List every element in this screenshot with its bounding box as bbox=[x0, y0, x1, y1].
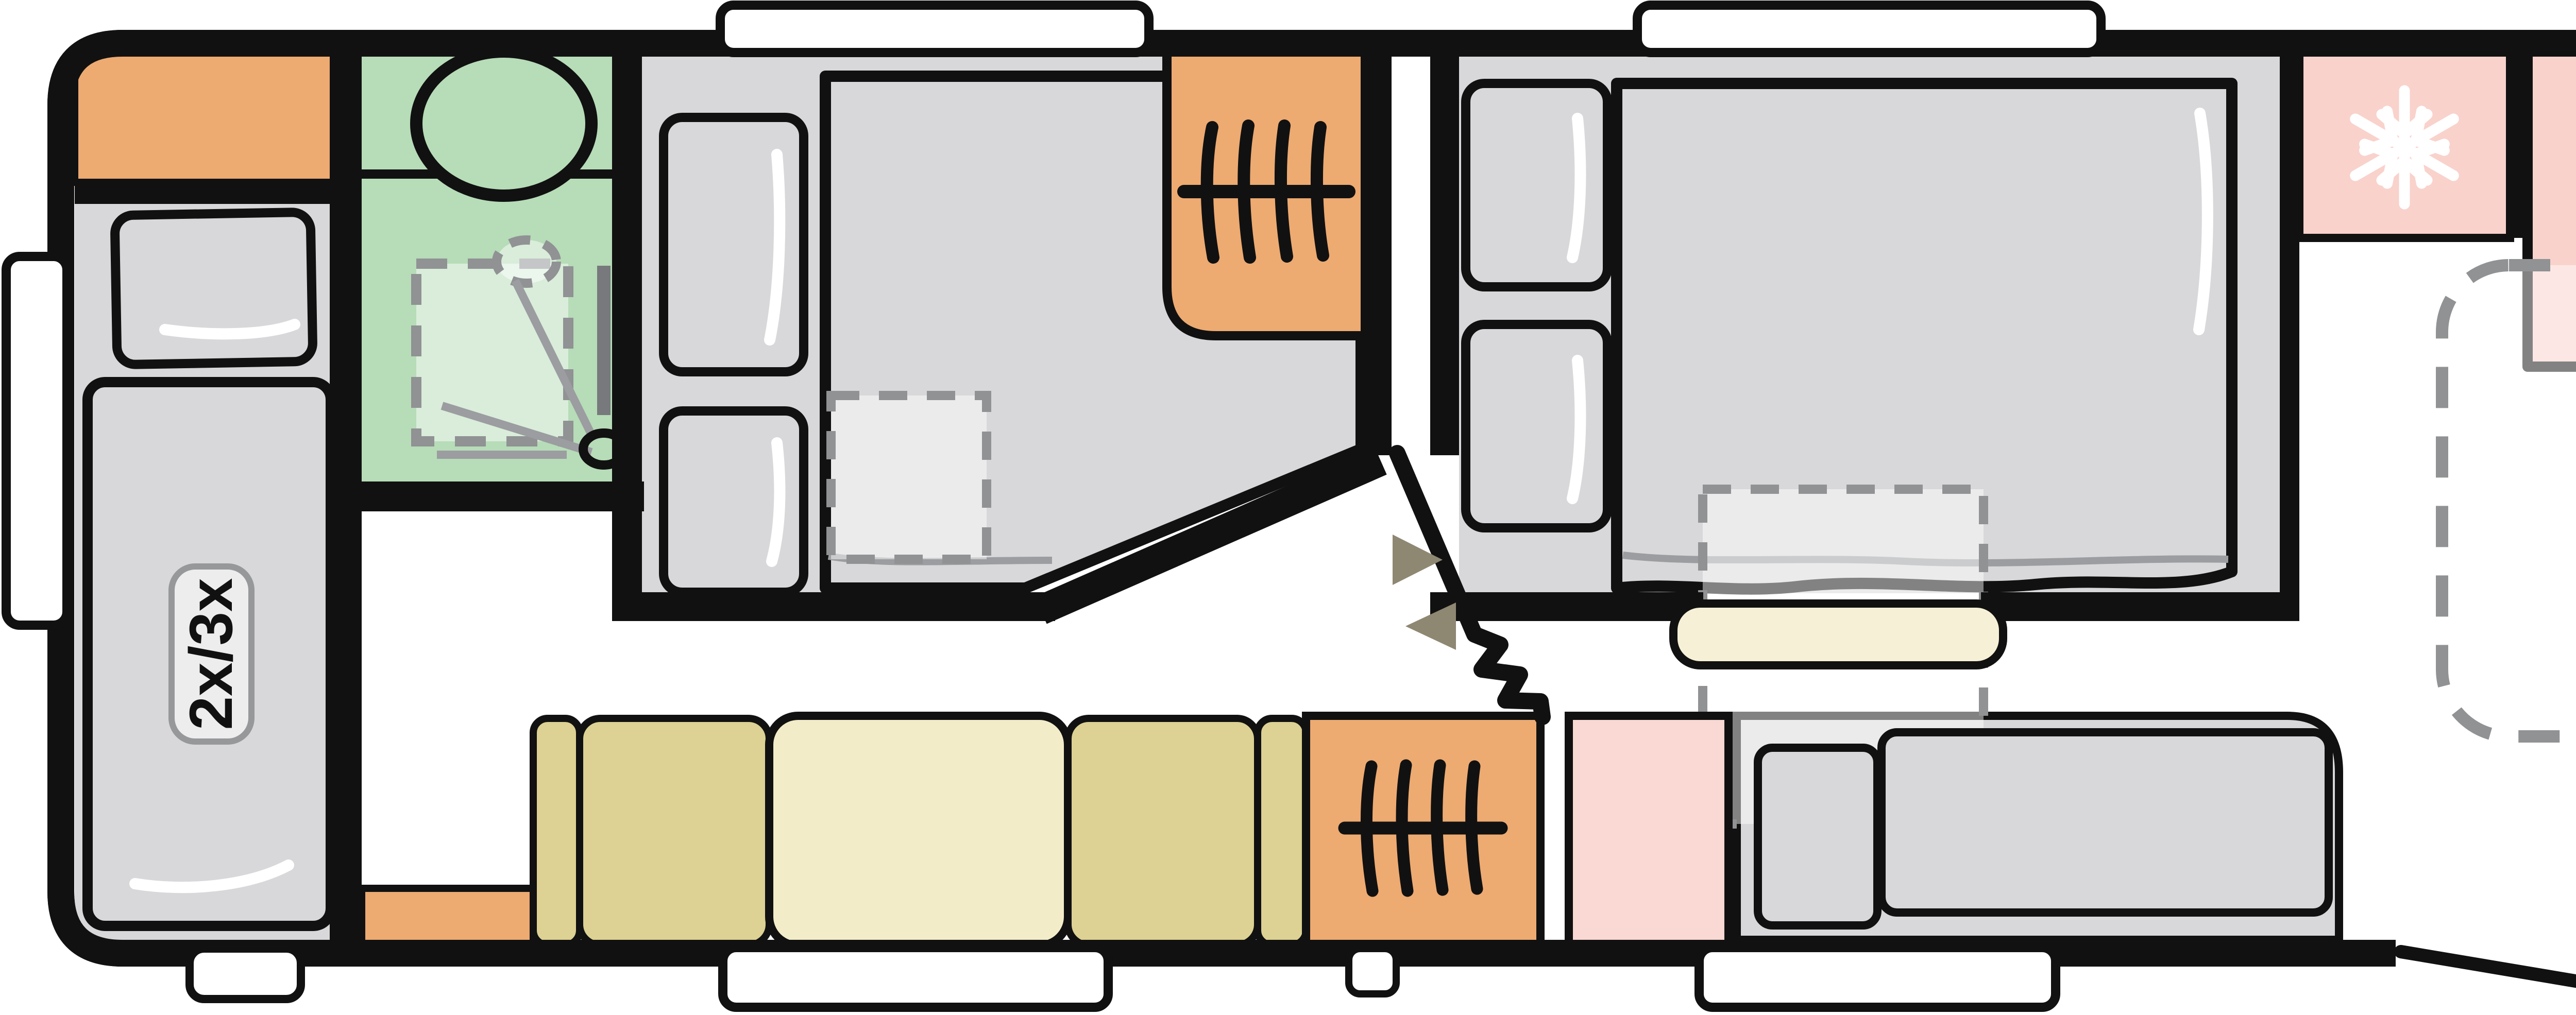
seat-cushion bbox=[1882, 732, 2329, 913]
bunk-bed: 2x/3x bbox=[88, 212, 331, 926]
corner-steady bbox=[1349, 949, 1396, 994]
window-icon bbox=[1699, 948, 2056, 1007]
fold-out-table-outline-icon bbox=[831, 395, 987, 559]
seat-cushion bbox=[1758, 748, 1877, 925]
corner-steady bbox=[190, 949, 301, 999]
toilet-icon bbox=[416, 51, 591, 196]
pillow bbox=[1466, 324, 1607, 528]
bunk-pillow bbox=[114, 212, 313, 365]
drop-down-bed-outline-icon bbox=[2442, 265, 2576, 736]
shower-tray bbox=[416, 264, 568, 441]
floor-plan-canvas: 2x/3x bbox=[0, 0, 2576, 1015]
pillow bbox=[1466, 83, 1607, 287]
bench-segment bbox=[533, 718, 580, 945]
pull-out-step bbox=[1673, 604, 2003, 665]
cabinet-pink-bottom bbox=[1569, 716, 1728, 945]
bunk-bed-label: 2x/3x bbox=[177, 578, 245, 730]
window-icon bbox=[723, 948, 1108, 1007]
window-icon bbox=[720, 5, 1149, 53]
front-overhead-cabinet bbox=[75, 49, 337, 182]
window-icon bbox=[6, 256, 67, 625]
window-icon bbox=[1637, 5, 2101, 53]
low-cabinet-front bbox=[362, 888, 533, 946]
bench-segment bbox=[1258, 718, 1306, 945]
bench-segment bbox=[580, 718, 769, 945]
bench-cushion-center bbox=[769, 716, 1068, 945]
bench-segment bbox=[1068, 718, 1258, 945]
caravan-floor-plan: 2x/3x bbox=[0, 0, 2576, 1015]
